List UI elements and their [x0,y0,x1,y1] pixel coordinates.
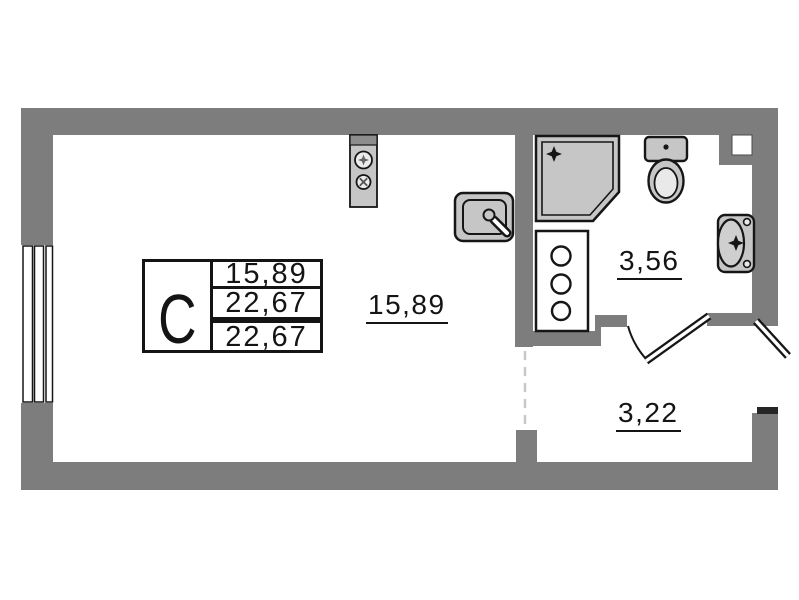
unit-area-row: 22,67 [213,289,320,320]
wall-left-lower [21,403,53,462]
kitchen-sink-icon [455,193,513,241]
entrance-threshold [757,407,778,414]
cabinet-circle [552,302,570,320]
toilet-button [663,144,668,149]
unit-type-cell: C [145,262,213,350]
unit-area-row: 22,67 [213,320,320,352]
toilet-bowl-inner [655,168,678,198]
wall-right-lower [752,413,778,462]
stove-body [350,135,377,207]
unit-area-row: 15,89 [213,262,320,289]
stove-panel [350,135,377,145]
vent-shaft [732,135,752,155]
wall-left-upper [21,135,53,245]
bathroom-door [628,316,709,361]
entrance-door [756,321,788,356]
unit-area-cells: 15,89 22,67 22,67 [213,262,320,350]
wall-right-upper [752,135,778,326]
wall-bathroom-bottom-mid [595,315,627,327]
wall-hallway-stub [516,430,537,462]
wall-bathroom-bottom-right [707,313,752,326]
door-leaf [646,316,709,361]
window [21,245,53,403]
stove-icon [350,135,377,207]
wall-bathroom-bottom-left [515,331,601,346]
window-pane [35,246,44,402]
utility-cabinet-icon [536,231,588,331]
door-leaf [756,321,788,356]
wall-bottom [21,462,778,490]
room-area-label-living: 15,89 [366,291,448,324]
room-area-label-hallway: 3,22 [616,399,681,432]
wall-bathroom-divider [515,135,533,347]
mount-screw [744,219,751,226]
cabinet-circle [552,247,571,266]
unit-info-card: C 15,89 22,67 22,67 [142,259,323,353]
wall-vent-horizontal [719,155,753,165]
room-area-label-bathroom: 3,56 [617,247,682,280]
faucet-base [484,210,495,221]
wall-top [21,108,778,135]
window-pane [46,246,53,402]
floor-plan: C 15,89 22,67 22,67 15,89 3,56 3,22 [0,0,799,600]
unit-type-label: C [158,291,196,347]
door-swing-arc [628,326,647,360]
shower-cabin-icon [536,136,619,221]
washbasin-icon [718,215,754,272]
shower-tray [536,136,619,221]
toilet-icon [645,137,687,203]
cabinet-circle [552,275,571,294]
mount-screw [744,261,751,268]
window-pane [23,246,33,402]
